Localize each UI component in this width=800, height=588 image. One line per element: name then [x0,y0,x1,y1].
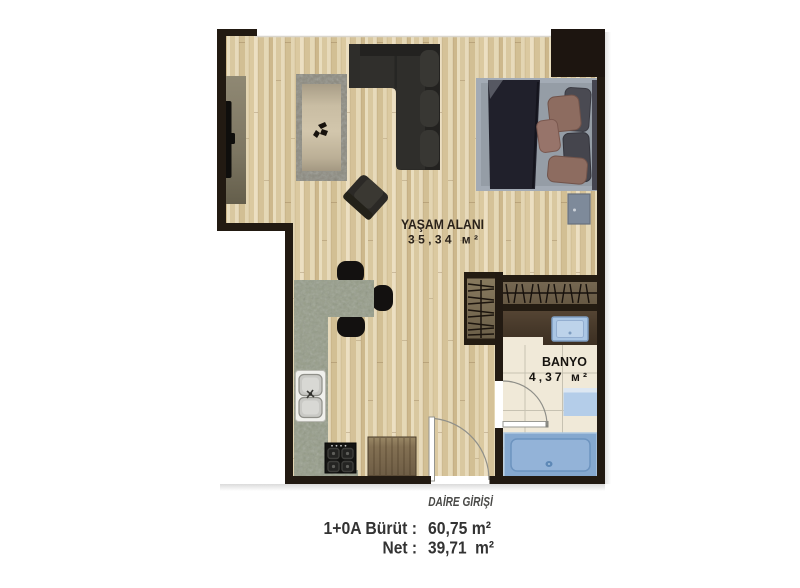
svg-text:DAİRE GİRİŞİ: DAİRE GİRİŞİ [428,494,494,509]
svg-text:YAŞAM ALANI: YAŞAM ALANI [401,216,484,232]
svg-text:Net :: Net : [383,538,418,558]
svg-text:1+0A Bürüt :: 1+0A Bürüt : [324,518,418,538]
svg-text:60,75 m²: 60,75 m² [428,518,491,538]
svg-text:39,71 m²: 39,71 m² [428,538,494,558]
svg-text:BANYO: BANYO [542,354,587,369]
